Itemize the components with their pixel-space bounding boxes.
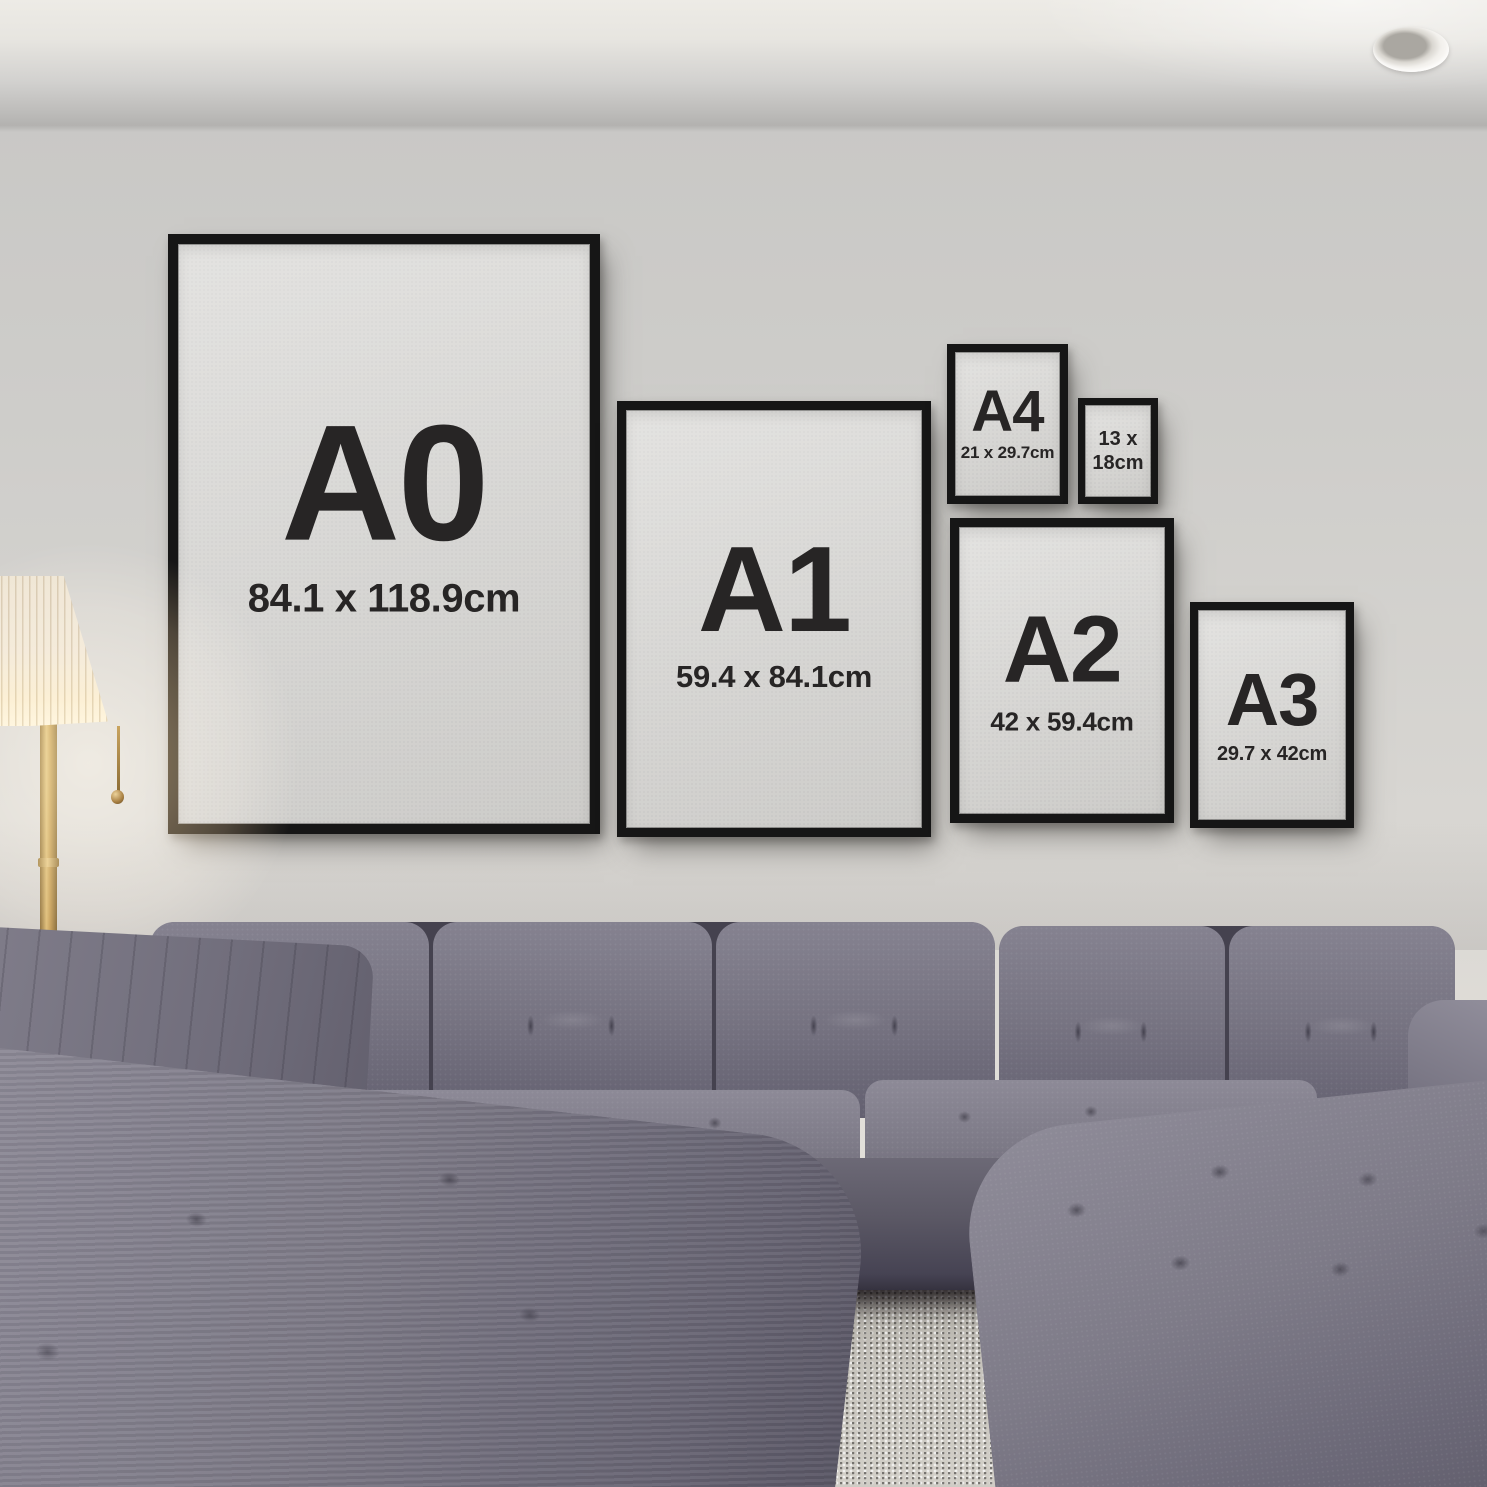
a4-text-block: A4 21 x 29.7cm: [961, 385, 1055, 463]
a2-text-block: A2 42 x 59.4cm: [990, 607, 1133, 737]
a0-size-label: A0: [281, 407, 487, 559]
a2-poster: A2 42 x 59.4cm: [959, 527, 1165, 814]
living-room-scene: A0 84.1 x 118.9cm A1 59.4 x 84.1cm A4 21…: [0, 0, 1487, 1487]
a0-text-block: A0 84.1 x 118.9cm: [248, 407, 520, 622]
a3-size-label: A3: [1226, 666, 1318, 734]
frame-13x18: 13 x 18cm: [1078, 398, 1158, 504]
a0-dimensions: 84.1 x 118.9cm: [248, 577, 520, 622]
a1-frame: A1 59.4 x 84.1cm: [617, 401, 931, 837]
lamp-pull-chain-ball: [111, 790, 124, 804]
sofa-right-chaise: [958, 1072, 1487, 1487]
lamp-pole: [40, 722, 57, 934]
a4-size-label: A4: [971, 385, 1043, 438]
lamp-pole-joint: [38, 858, 59, 867]
a2-frame: A2 42 x 59.4cm: [950, 518, 1174, 823]
a2-size-label: A2: [1003, 607, 1122, 694]
a4-dimensions: 21 x 29.7cm: [961, 443, 1055, 463]
a4-poster: A4 21 x 29.7cm: [955, 352, 1060, 496]
a1-poster: A1 59.4 x 84.1cm: [626, 410, 922, 828]
recessed-spotlight: [1373, 27, 1449, 72]
a3-poster: A3 29.7 x 42cm: [1198, 610, 1346, 820]
a1-size-label: A1: [698, 533, 850, 645]
frame-13x18-text-block: 13 x 18cm: [1092, 427, 1143, 475]
a0-frame: A0 84.1 x 118.9cm: [168, 234, 600, 834]
a1-text-block: A1 59.4 x 84.1cm: [676, 533, 872, 695]
frame-13x18-caption-line2: 18cm: [1092, 451, 1143, 475]
frame-13x18-caption-line1: 13 x: [1099, 427, 1138, 451]
a0-poster: A0 84.1 x 118.9cm: [178, 244, 590, 824]
sofa-back-cushion: [433, 922, 712, 1118]
a2-dimensions: 42 x 59.4cm: [990, 706, 1133, 737]
frame-13x18-poster: 13 x 18cm: [1085, 405, 1151, 497]
a4-frame: A4 21 x 29.7cm: [947, 344, 1068, 504]
lamp-shade: [0, 576, 108, 726]
a1-dimensions: 59.4 x 84.1cm: [676, 659, 872, 695]
lamp-pull-chain: [117, 726, 120, 792]
a3-frame: A3 29.7 x 42cm: [1190, 602, 1354, 828]
a3-dimensions: 29.7 x 42cm: [1217, 743, 1327, 766]
a3-text-block: A3 29.7 x 42cm: [1217, 666, 1327, 766]
